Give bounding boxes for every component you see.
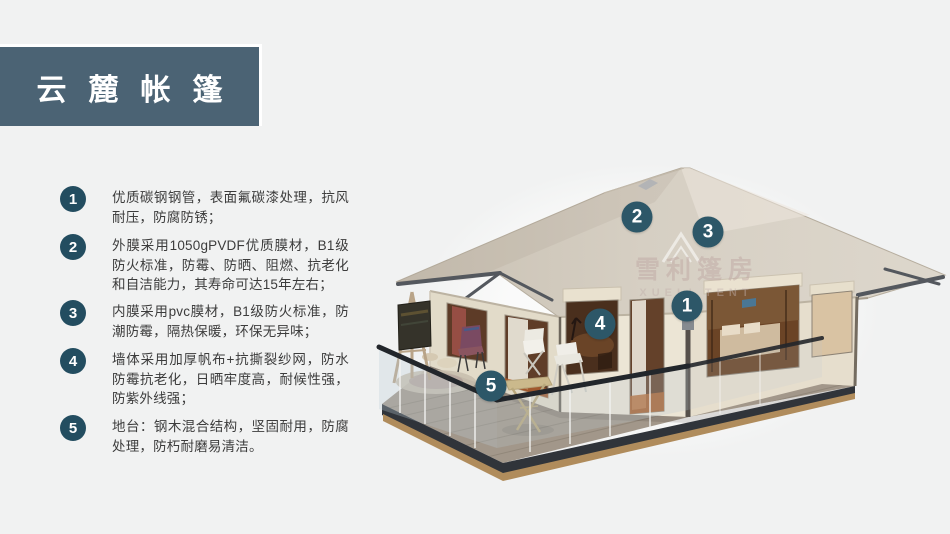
callout-number: 3 — [703, 221, 714, 243]
callout-number: 1 — [682, 295, 693, 317]
callout-number: 2 — [632, 206, 643, 228]
callout-badge-4: 4 — [585, 309, 616, 340]
callout-badge-3: 3 — [693, 217, 724, 248]
callout-badge-5: 5 — [476, 371, 507, 402]
callout-badge-2: 2 — [622, 202, 653, 233]
tent-roof — [396, 168, 945, 320]
callout-badge-1: 1 — [672, 291, 703, 322]
pouf — [437, 358, 457, 368]
callout-number: 4 — [595, 313, 606, 335]
tent-illustration — [0, 0, 950, 534]
slide: 云麓帐篷 1 优质碳钢钢管，表面氟碳漆处理，抗风耐压，防腐防锈； 2 外膜采用1… — [0, 0, 950, 534]
callout-number: 5 — [486, 375, 497, 397]
